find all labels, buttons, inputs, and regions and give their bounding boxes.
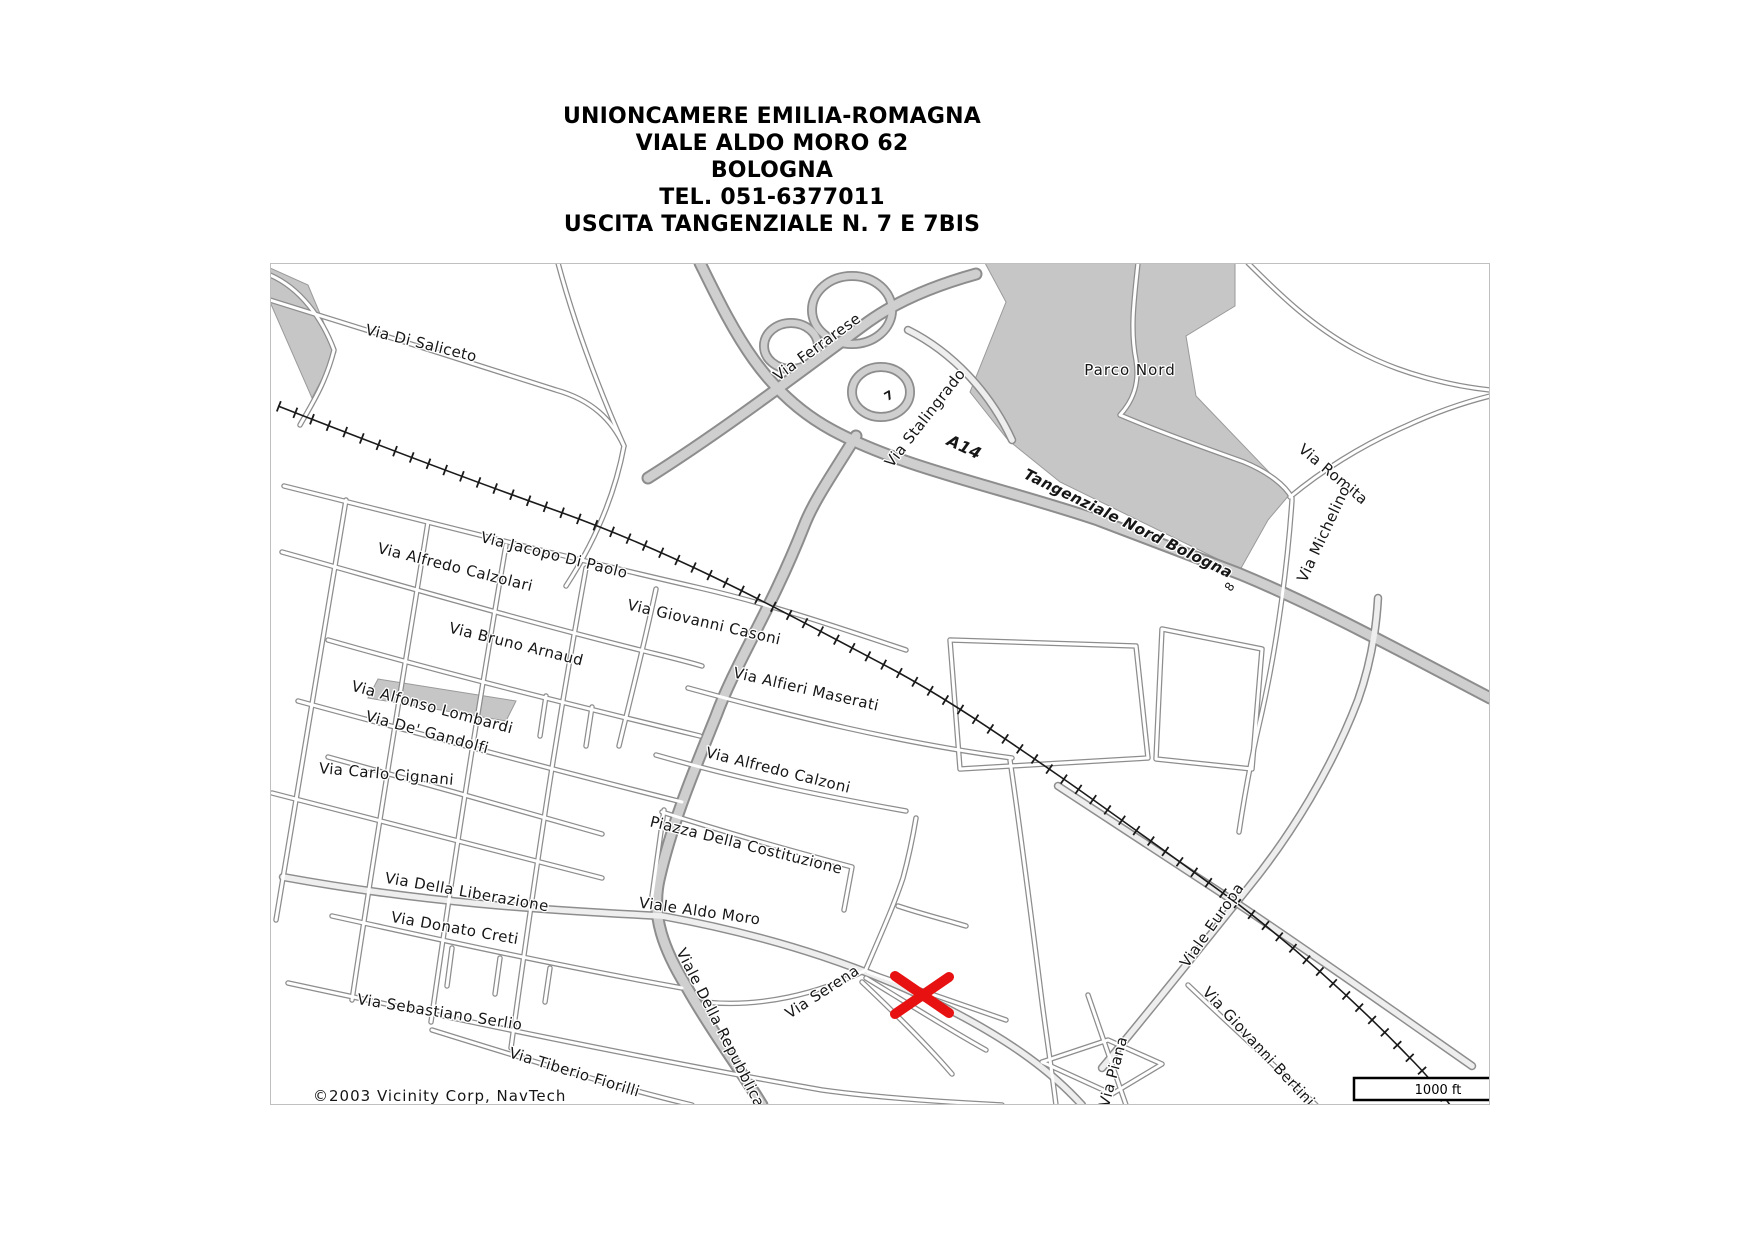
header-phone: TEL. 051-6377011 bbox=[272, 184, 1272, 211]
map-label: A14 bbox=[942, 430, 984, 463]
casing-east-block-b bbox=[1156, 629, 1262, 769]
road-east-block-b bbox=[1156, 629, 1262, 769]
map-label: Via Michelino bbox=[1293, 483, 1353, 585]
map-label: Viale Europa bbox=[1176, 879, 1248, 970]
casing-via-romita bbox=[1290, 396, 1490, 497]
casing-serena-north-spur bbox=[866, 818, 916, 969]
scale-bar: 1000 ft bbox=[1354, 1078, 1490, 1100]
map-label: Viale Della Repubblica bbox=[672, 945, 768, 1105]
road-via-romita bbox=[1290, 396, 1490, 497]
map-label: Via Alfredo Calzoni bbox=[704, 743, 852, 796]
casing-ne-corner-road bbox=[1248, 263, 1490, 390]
directions-page: UNIONCAMERE EMILIA-ROMAGNA VIALE ALDO MO… bbox=[0, 0, 1755, 1240]
map-label: Parco Nord bbox=[1084, 361, 1175, 379]
map-label: Via Giovanni Bertini bbox=[1199, 983, 1319, 1105]
map-label: 8 bbox=[1222, 579, 1238, 594]
map-label: Via Di Saliceto bbox=[364, 321, 479, 366]
header-exit-info: USCITA TANGENZIALE N. 7 E 7BIS bbox=[272, 211, 1272, 238]
header-city: BOLOGNA bbox=[272, 157, 1272, 184]
road-ne-corner-road bbox=[1248, 263, 1490, 390]
map-label: Via Serena bbox=[782, 961, 863, 1022]
scale-bar-label: 1000 ft bbox=[1415, 1083, 1462, 1098]
map-label: 7 bbox=[882, 387, 897, 403]
road-east-block-a bbox=[950, 640, 1148, 769]
page-header: UNIONCAMERE EMILIA-ROMAGNA VIALE ALDO MO… bbox=[272, 103, 1272, 238]
map-label: Via Sebastiano Serlio bbox=[356, 990, 524, 1034]
map-label: Via Bruno Arnaud bbox=[447, 619, 585, 670]
header-company-name: UNIONCAMERE EMILIA-ROMAGNA bbox=[272, 103, 1272, 130]
street-map: 1000 ftVia Di SalicetoVia FerrareseVia S… bbox=[270, 263, 1490, 1105]
map-label: ©2003 Vicinity Corp, NavTech bbox=[313, 1087, 566, 1105]
road-via-carlo-cignani bbox=[272, 793, 602, 878]
map-label: Piazza Della Costituzione bbox=[648, 812, 844, 877]
road-aldo-moro-spur bbox=[898, 906, 966, 926]
casing-east-block-a bbox=[950, 640, 1148, 769]
header-address: VIALE ALDO MORO 62 bbox=[272, 130, 1272, 157]
map-svg: 1000 ftVia Di SalicetoVia FerrareseVia S… bbox=[270, 263, 1490, 1105]
